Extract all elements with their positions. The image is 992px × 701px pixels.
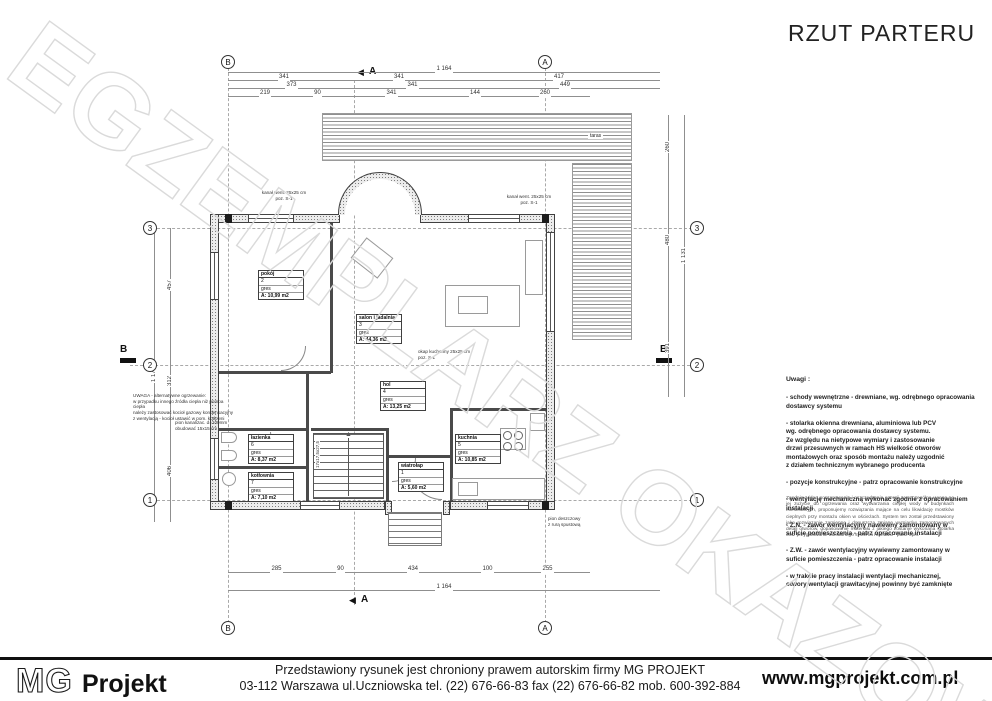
window bbox=[487, 501, 529, 510]
column bbox=[542, 501, 549, 510]
dim-segment: 255 bbox=[505, 572, 590, 573]
dim-segment: 457 bbox=[170, 228, 173, 342]
axis-marker-2-left: 2 bbox=[143, 358, 157, 372]
annotation-duct: kanał went. 25x25 cm poz. S-1 bbox=[497, 194, 561, 205]
interior-wall bbox=[306, 374, 309, 501]
axis-letter: 3 bbox=[695, 224, 699, 233]
burner-icon bbox=[514, 442, 523, 451]
window bbox=[468, 214, 520, 223]
dim-value: 219 bbox=[259, 90, 271, 97]
dim-total-right: 1 131 bbox=[684, 115, 687, 397]
axis-letter: 2 bbox=[695, 361, 699, 370]
dim-value: 255 bbox=[541, 566, 553, 573]
axis-letter: A bbox=[542, 624, 547, 633]
dim-value: 90 bbox=[313, 90, 322, 97]
room-number: 1 bbox=[399, 470, 443, 477]
note-item: - stolarka okienna drewniana, aluminiowa… bbox=[786, 420, 991, 471]
footer-copyright: Przedstawiony rysunek jest chroniony pra… bbox=[230, 662, 750, 695]
room-name: kuchnia bbox=[456, 435, 500, 442]
dim-value: 341 bbox=[406, 82, 418, 89]
burner-icon bbox=[503, 442, 512, 451]
room-name: wiatrołap bbox=[399, 463, 443, 470]
note-item: - w trakcie pracy instalacji wentylacji … bbox=[786, 573, 991, 590]
note-item: - schody wewnętrzne - drewniane, wg. odr… bbox=[786, 394, 991, 411]
interior-wall bbox=[219, 371, 331, 374]
dim-segment: 90 bbox=[302, 96, 333, 97]
dim-segment: 219 bbox=[228, 96, 302, 97]
dim-segment: 406 bbox=[170, 420, 173, 522]
toilet bbox=[221, 432, 237, 443]
dim-value: 1 131 bbox=[681, 247, 687, 264]
column bbox=[542, 214, 549, 223]
axis-letter: 1 bbox=[148, 496, 152, 505]
stairs-direction-line bbox=[348, 438, 349, 496]
annotation-duct: kanał went. 25x25 cm poz. S-1 bbox=[252, 190, 316, 201]
room-floor: gres bbox=[456, 450, 500, 457]
window bbox=[248, 214, 294, 223]
room-area: A: 44,36 m2 bbox=[357, 337, 401, 343]
section-b-label-left: B bbox=[120, 344, 127, 355]
dim-value: 434 bbox=[407, 566, 419, 573]
room-number: 5 bbox=[456, 442, 500, 449]
kitchen-sink bbox=[458, 482, 478, 496]
note-item: - pozycje konstrukcyjne - patrz opracowa… bbox=[786, 479, 991, 488]
dim-value: 90 bbox=[336, 566, 345, 573]
dim-segment: 260 bbox=[500, 96, 590, 97]
stairs-direction-arrow: ▲ bbox=[345, 431, 352, 438]
dim-value: 417 bbox=[553, 74, 565, 81]
dim-value: 1 164 bbox=[435, 66, 452, 73]
room-label-hol: hol 4 gres A: 13,25 m2 bbox=[380, 381, 426, 411]
coffee-table bbox=[458, 296, 488, 314]
room-label-salon: salon i jadalnia 3 gres A: 44,36 m2 bbox=[356, 314, 402, 344]
dim-total-bottom: 1 164 bbox=[228, 590, 660, 591]
notes-heading: Uwagi : bbox=[786, 375, 991, 384]
room-area: A: 13,25 m2 bbox=[381, 404, 425, 410]
window-hs-sliding bbox=[546, 232, 555, 332]
dim-value: 341 bbox=[393, 74, 405, 81]
room-area: A: 7,10 m2 bbox=[249, 495, 293, 501]
interior-wall bbox=[386, 430, 389, 501]
dim-segment: 341 bbox=[355, 88, 470, 89]
dim-value: 449 bbox=[559, 82, 571, 89]
door-swing bbox=[281, 346, 306, 371]
axis-letter: 2 bbox=[148, 361, 152, 370]
dim-value: 285 bbox=[270, 566, 282, 573]
tv-cabinet bbox=[525, 240, 543, 295]
dim-segment: 449 bbox=[470, 88, 660, 89]
room-area: A: 10,99 m2 bbox=[259, 293, 303, 299]
dim-value: 260 bbox=[665, 141, 671, 153]
entrance-steps bbox=[388, 512, 442, 546]
dim-segment: 391 bbox=[668, 300, 671, 397]
axis-marker-3-left: 3 bbox=[143, 221, 157, 235]
column bbox=[225, 214, 232, 223]
room-floor: gres bbox=[357, 330, 401, 337]
axis-letter: A bbox=[542, 58, 547, 67]
window bbox=[210, 252, 219, 300]
cooktop bbox=[500, 428, 526, 450]
room-label-kotlownia: kotłownia 7 gres A: 7,10 m2 bbox=[248, 472, 294, 502]
annotation-sewer: pion kanalizac. d=100mm obudować 15x15 c… bbox=[175, 420, 237, 431]
section-b-mark-left bbox=[120, 358, 136, 363]
dim-total-left: 1 175 bbox=[154, 228, 157, 522]
dim-value: 100 bbox=[481, 566, 493, 573]
room-name: kotłownia bbox=[249, 473, 293, 480]
dim-segment: 373 bbox=[228, 88, 355, 89]
dim-value: 312 bbox=[167, 375, 173, 387]
axis-marker-1-left: 1 bbox=[143, 493, 157, 507]
annotation-uwaga: UWAGA - alternatywne ogrzewanie: w przyp… bbox=[133, 393, 235, 422]
room-label-lazienka: łazienka 6 gres A: 8,37 m2 bbox=[248, 434, 294, 464]
fridge bbox=[530, 413, 545, 431]
axis-marker-b-bottom: B bbox=[221, 621, 235, 635]
dim-segment: 341 bbox=[228, 80, 340, 81]
burner-icon bbox=[503, 431, 512, 440]
dim-value: 341 bbox=[278, 74, 290, 81]
dim-value: 457 bbox=[167, 279, 173, 291]
dim-segment: 341 bbox=[340, 80, 458, 81]
page-title: RZUT PARTERU bbox=[788, 20, 975, 47]
dim-segment: 434 bbox=[356, 572, 470, 573]
dim-segment: 144 bbox=[450, 96, 500, 97]
interior-wall bbox=[219, 466, 309, 469]
annotation-hood: okap kuchenny 25x25 cm poz. S-1 bbox=[418, 349, 490, 360]
axis-marker-a-top: A bbox=[538, 55, 552, 69]
terrace-deck-top bbox=[322, 113, 632, 161]
note-item: - Z.W. - zawór wentylacyjny wywiewny zam… bbox=[786, 547, 991, 564]
dim-total-top: 1 164 bbox=[228, 72, 660, 73]
dim-value: 341 bbox=[385, 90, 397, 97]
address-line: 03-112 Warszawa ul.Uczniowska tel. (22) … bbox=[230, 678, 750, 694]
dim-segment: 480 bbox=[668, 180, 671, 300]
annotation-rain: pion deszczowy z rurą spustową bbox=[548, 516, 610, 527]
room-number: 2 bbox=[259, 278, 303, 285]
dim-segment: 100 bbox=[470, 572, 505, 573]
website-url: www.mgprojekt.com.pl bbox=[762, 668, 958, 689]
dim-value: 373 bbox=[285, 82, 297, 89]
interior-wall bbox=[450, 408, 546, 411]
section-a-label-bottom: A bbox=[361, 594, 368, 605]
fine-print: Zgodnie z ideą poszanowania i oszczędzan… bbox=[786, 496, 954, 540]
window bbox=[210, 438, 219, 480]
burner-icon bbox=[514, 431, 523, 440]
room-floor: gres bbox=[249, 488, 293, 495]
axis-marker-a-bottom: A bbox=[538, 621, 552, 635]
room-name: hol bbox=[381, 382, 425, 389]
dim-value: 480 bbox=[665, 234, 671, 246]
dim-value: 391 bbox=[665, 342, 671, 354]
dim-value: 1 164 bbox=[435, 584, 452, 591]
terrace-label: taras bbox=[588, 133, 603, 139]
room-label-wiatrolap: wiatrołap 1 gres A: 5,60 m2 bbox=[398, 462, 444, 492]
boiler bbox=[222, 472, 236, 486]
dim-segment: 90 bbox=[325, 572, 356, 573]
room-area: A: 8,37 m2 bbox=[249, 457, 293, 463]
notes-block: Uwagi : - schody wewnętrzne - drewniane,… bbox=[786, 366, 991, 598]
room-number: 4 bbox=[381, 389, 425, 396]
room-floor: gres bbox=[399, 478, 443, 485]
axis-letter: B bbox=[225, 58, 230, 67]
dim-value: 406 bbox=[167, 465, 173, 477]
axis-marker-3-right: 3 bbox=[690, 221, 704, 235]
room-number: 7 bbox=[249, 480, 293, 487]
window bbox=[300, 501, 340, 510]
room-name: salon i jadalnia bbox=[357, 315, 401, 322]
footer-divider bbox=[0, 657, 992, 660]
room-area: A: 10,85 m2 bbox=[456, 457, 500, 463]
room-floor: gres bbox=[249, 450, 293, 457]
dim-segment: 417 bbox=[458, 80, 660, 81]
dim-segment: 285 bbox=[228, 572, 325, 573]
dim-segment: 260 bbox=[668, 115, 671, 180]
axis-letter: 1 bbox=[695, 496, 699, 505]
axis-marker-2-right: 2 bbox=[690, 358, 704, 372]
logo-mg-text: MG bbox=[16, 663, 73, 699]
axis-marker-1-right: 1 bbox=[690, 493, 704, 507]
logo-projekt-text: Projekt bbox=[82, 670, 167, 698]
section-a-arrow-bottom: ◀ bbox=[349, 596, 356, 605]
room-area: A: 5,60 m2 bbox=[399, 485, 443, 491]
interior-wall bbox=[330, 223, 333, 373]
dim-value: 144 bbox=[469, 90, 481, 97]
grid-line-b bbox=[228, 68, 229, 628]
axis-letter: 3 bbox=[148, 224, 152, 233]
dining-table bbox=[351, 237, 394, 278]
dim-value: 260 bbox=[539, 90, 551, 97]
dim-segment: 341 bbox=[333, 96, 450, 97]
room-label-kuchnia: kuchnia 5 gres A: 10,85 m2 bbox=[455, 434, 501, 464]
stairs-note: 17x17,5x27,5 bbox=[315, 441, 320, 468]
room-name: pokój bbox=[259, 271, 303, 278]
axis-letter: B bbox=[225, 624, 230, 633]
room-label-pokoj: pokój 2 gres A: 10,99 m2 bbox=[258, 270, 304, 300]
column bbox=[225, 501, 232, 510]
copyright-line: Przedstawiony rysunek jest chroniony pra… bbox=[230, 662, 750, 678]
room-floor: gres bbox=[259, 286, 303, 293]
room-number: 3 bbox=[357, 322, 401, 329]
exterior-wall-bottom-left bbox=[210, 501, 385, 510]
axis-marker-b-top: B bbox=[221, 55, 235, 69]
room-number: 6 bbox=[249, 442, 293, 449]
room-floor: gres bbox=[381, 397, 425, 404]
porch-wall-right bbox=[443, 501, 450, 515]
room-name: łazienka bbox=[249, 435, 293, 442]
washbasin bbox=[221, 450, 237, 461]
company-logo: MG Projekt bbox=[16, 663, 206, 699]
terrace-deck-right bbox=[572, 163, 632, 340]
